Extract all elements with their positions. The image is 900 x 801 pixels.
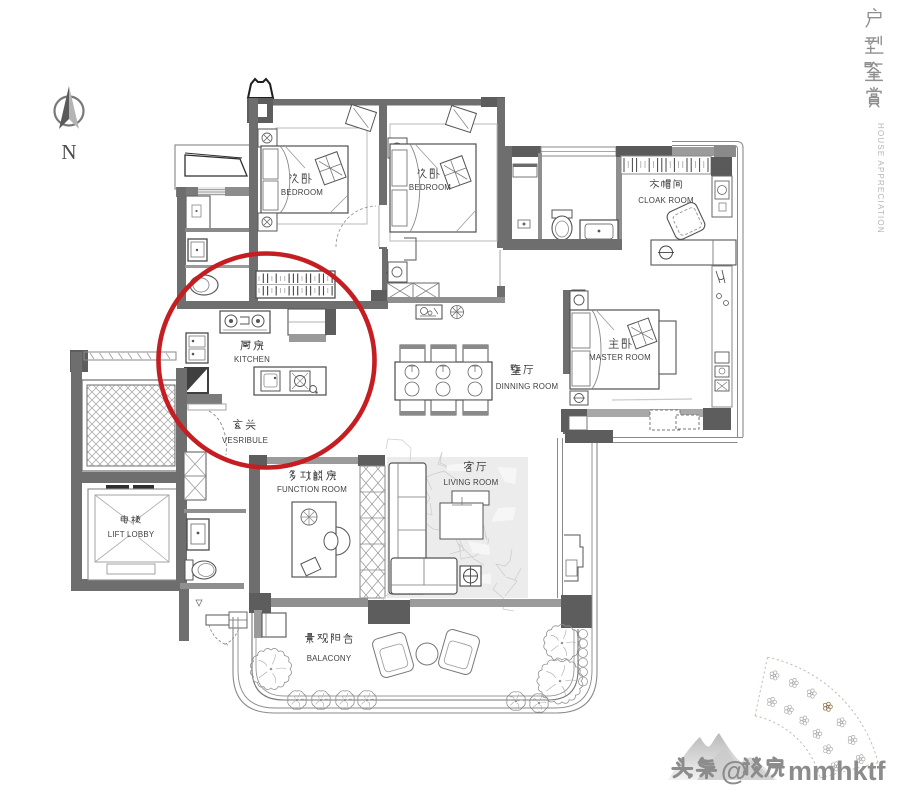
svg-text:CLOAK ROOM: CLOAK ROOM (638, 196, 694, 205)
svg-text:BEDROOM: BEDROOM (281, 188, 323, 197)
svg-text:@: @ (721, 756, 747, 786)
svg-text:mmhktf: mmhktf (788, 756, 887, 786)
svg-text:FUNCTION ROOM: FUNCTION ROOM (277, 485, 347, 494)
svg-text:HOUSE APPRECIATION: HOUSE APPRECIATION (876, 123, 885, 234)
svg-text:DINNING ROOM: DINNING ROOM (496, 382, 558, 391)
svg-text:MASTER ROOM: MASTER ROOM (589, 353, 651, 362)
svg-text:LIVING ROOM: LIVING ROOM (444, 478, 499, 487)
svg-text:VESRIBULE: VESRIBULE (222, 436, 268, 445)
svg-text:KITCHEN: KITCHEN (234, 355, 270, 364)
svg-text:N: N (61, 140, 76, 164)
svg-text:BALACONY: BALACONY (307, 654, 352, 663)
svg-text:LIFT LOBBY: LIFT LOBBY (108, 530, 155, 539)
svg-text:BEDROOM: BEDROOM (409, 183, 451, 192)
